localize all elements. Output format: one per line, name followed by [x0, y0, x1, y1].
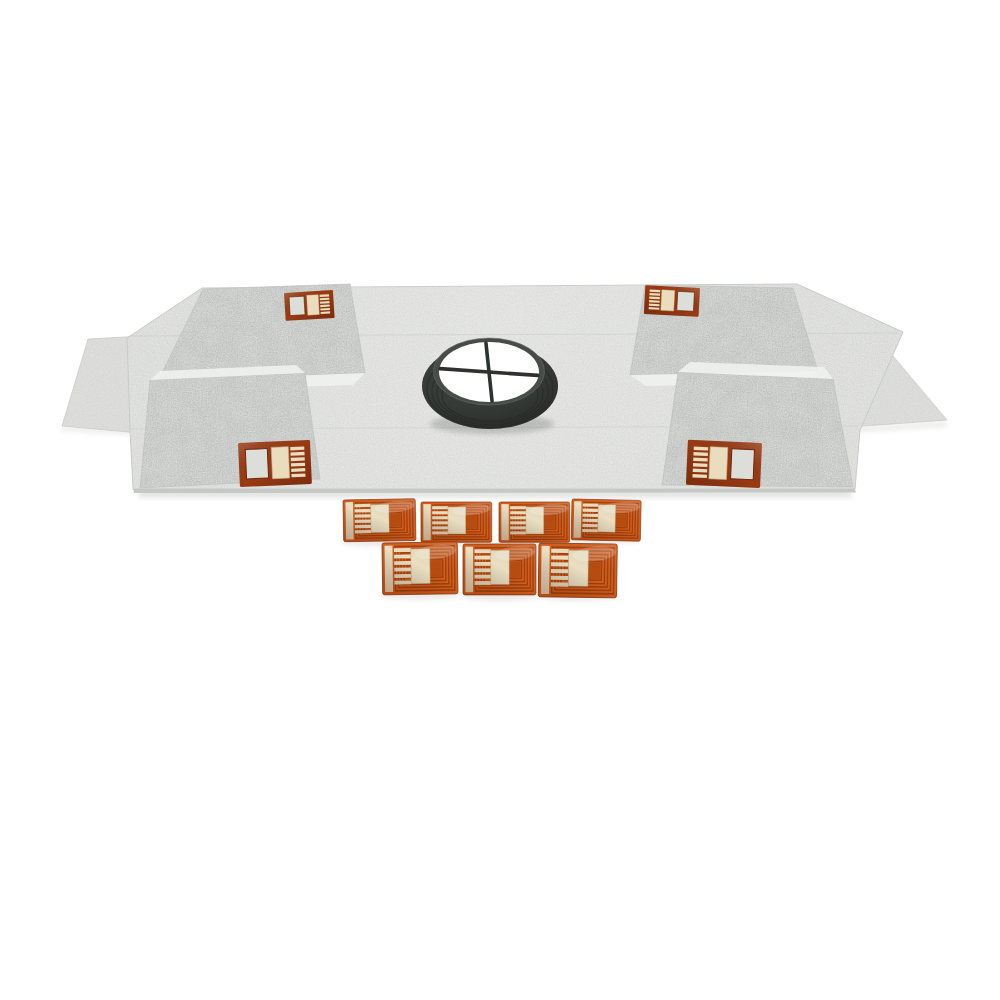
corner-patch-bottom-left [238, 440, 312, 487]
flex-pad-1 [343, 499, 416, 542]
flex-pad-3 [499, 502, 570, 542]
product-photo-canvas [0, 0, 1000, 1000]
scene-svg [0, 0, 1000, 1000]
flex-pad-4 [571, 499, 641, 541]
corner-patch-bottom-right [686, 440, 762, 488]
flex-pad-7 [538, 543, 617, 598]
corner-patch-top-right [644, 285, 700, 317]
flex-pad-5 [382, 542, 458, 595]
flex-pad-6 [463, 544, 536, 595]
white-backdrop [0, 0, 1000, 1000]
sheet-bottom-edge [133, 489, 856, 493]
corner-patch-top-left [284, 290, 335, 321]
flex-pad-2 [421, 502, 492, 542]
